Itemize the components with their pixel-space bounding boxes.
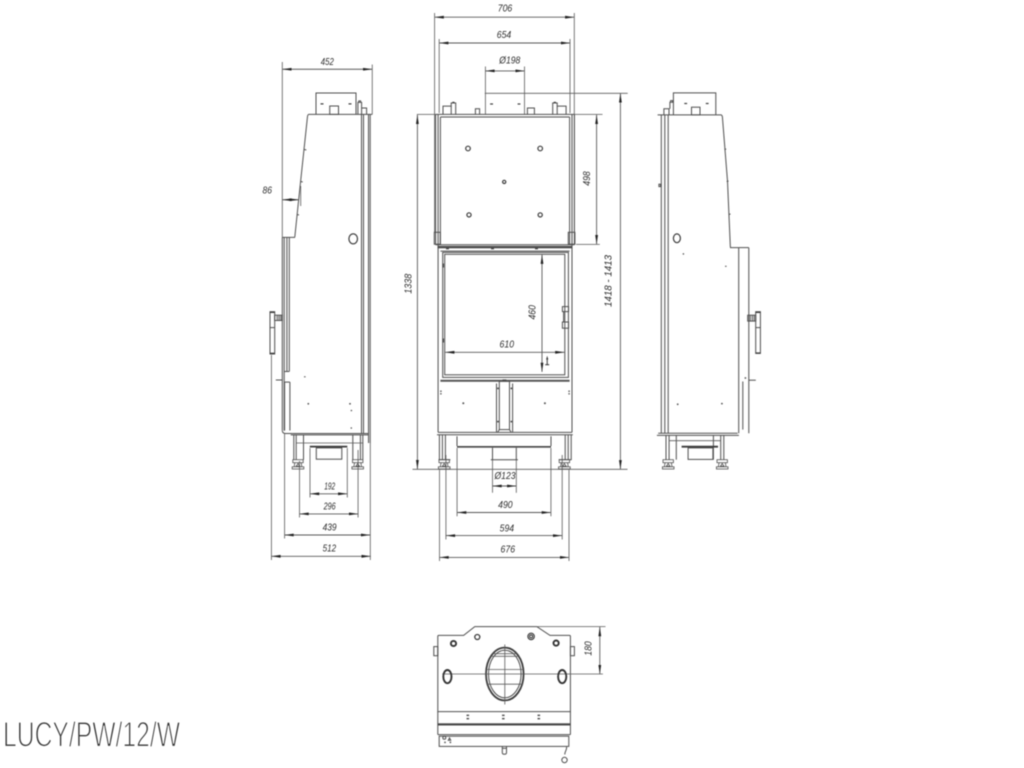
svg-text:Ø198: Ø198 — [498, 55, 520, 67]
svg-text:654: 654 — [497, 29, 512, 41]
svg-text:Ø123: Ø123 — [494, 470, 516, 482]
svg-text:LUCY/PW/12/W: LUCY/PW/12/W — [3, 715, 180, 755]
svg-text:1418 - 1413: 1418 - 1413 — [603, 255, 615, 307]
svg-text:676: 676 — [501, 544, 516, 556]
svg-text:460: 460 — [527, 305, 539, 320]
svg-text:452: 452 — [321, 56, 334, 68]
svg-text:706: 706 — [498, 3, 513, 15]
svg-text:610: 610 — [500, 339, 515, 351]
svg-text:512: 512 — [323, 543, 337, 555]
svg-text:594: 594 — [500, 522, 515, 534]
svg-text:498: 498 — [581, 171, 593, 186]
svg-text:439: 439 — [323, 521, 337, 533]
svg-text:180: 180 — [582, 641, 594, 656]
svg-text:1338: 1338 — [403, 274, 415, 294]
svg-text:490: 490 — [498, 499, 513, 511]
svg-text:192: 192 — [324, 481, 335, 493]
svg-text:86: 86 — [263, 185, 273, 197]
svg-text:296: 296 — [323, 500, 336, 512]
